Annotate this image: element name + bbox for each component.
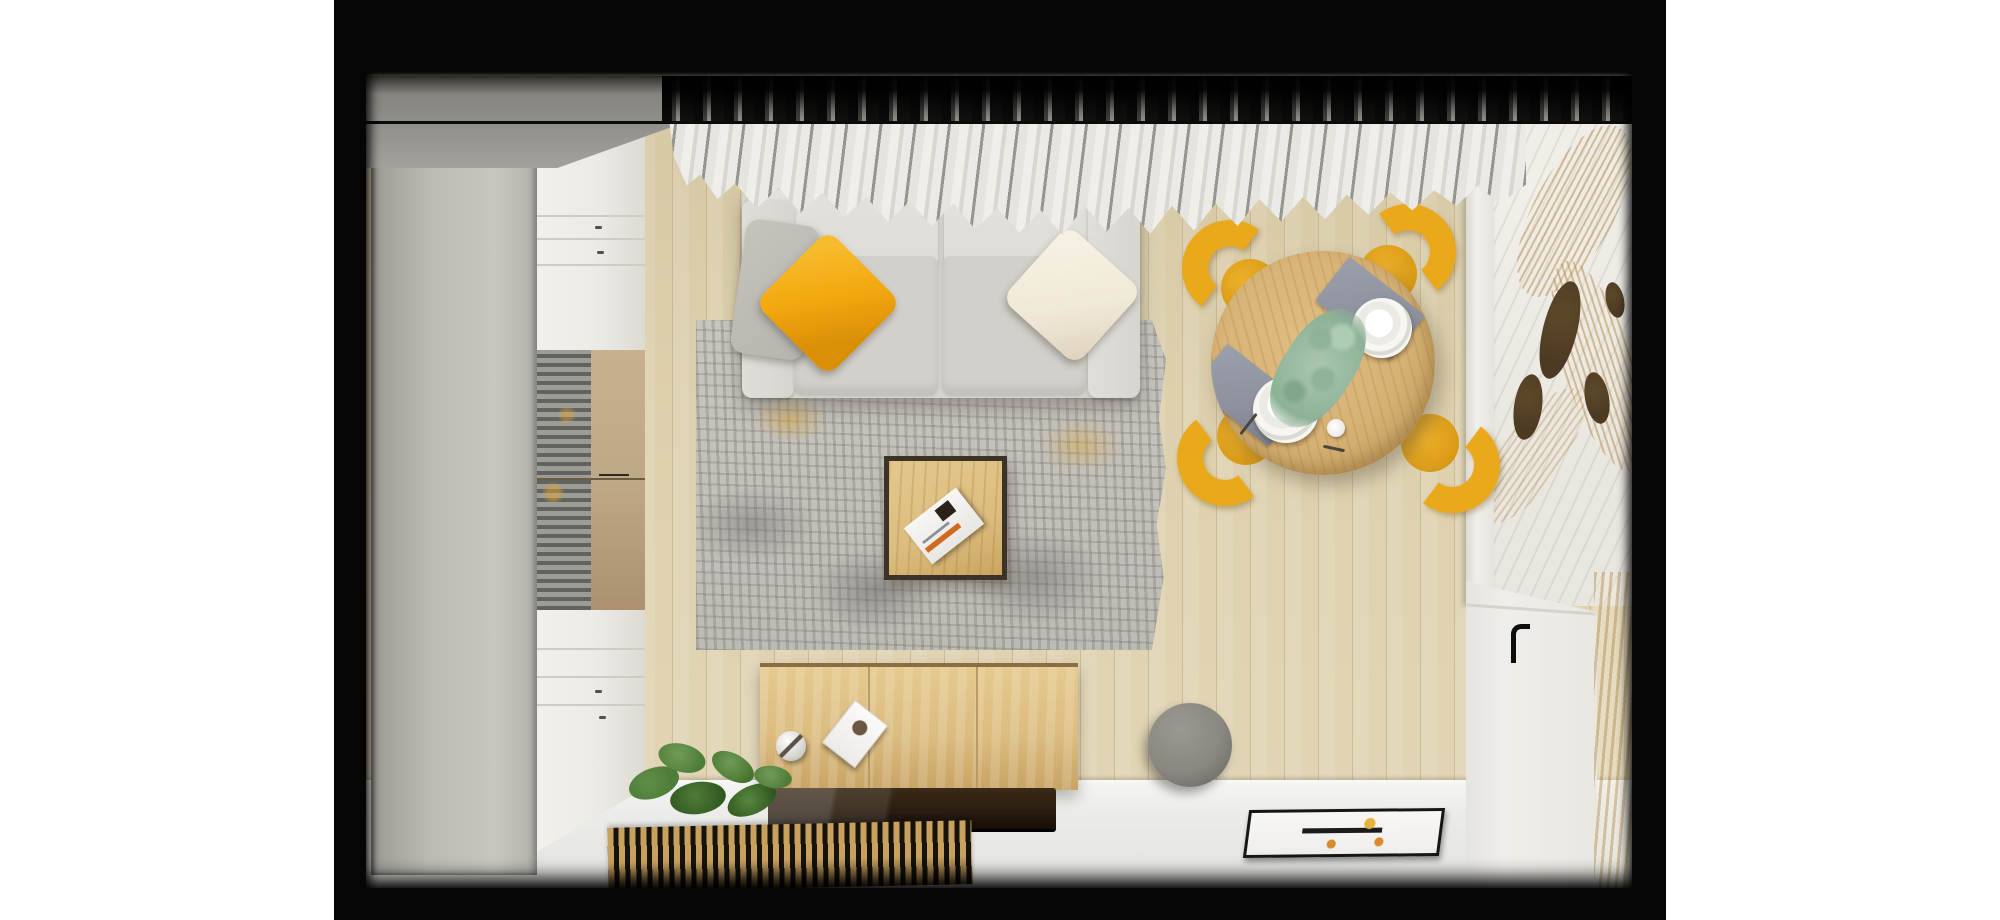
drawer-handle <box>597 251 604 254</box>
cabinet-seam <box>537 215 645 217</box>
floor-art-frame <box>1243 808 1445 858</box>
cabinet-glass-left <box>537 350 591 610</box>
cabinet-glass-seam <box>537 478 645 480</box>
drawer-handle <box>595 690 602 693</box>
white-door <box>1466 578 1597 888</box>
cabinet-seam <box>537 648 645 650</box>
drawer-handle <box>595 226 602 229</box>
door-handle-icon <box>1511 624 1530 663</box>
magazine <box>904 488 984 565</box>
ball-pouf <box>1148 703 1232 787</box>
plant-leaf <box>668 778 728 817</box>
coffee-table <box>884 456 1007 580</box>
page-canvas <box>0 0 2000 920</box>
cabinet-seam <box>537 238 645 240</box>
wall-column <box>1466 152 1494 606</box>
cabinet-seam <box>537 264 645 266</box>
plant <box>628 736 792 840</box>
palm-leaf-icon <box>1594 572 1632 888</box>
drawer-handle <box>599 716 606 719</box>
curtain-rail <box>366 121 1632 124</box>
decor-card <box>822 700 888 768</box>
cup <box>1327 419 1345 437</box>
cabinet-glass-handle <box>599 474 629 476</box>
wardrobe <box>371 84 537 875</box>
cutlery <box>1323 445 1345 453</box>
curtain-shadow-band <box>662 76 1632 124</box>
room-render <box>366 72 1632 888</box>
cabinet-glass-right <box>591 350 645 610</box>
cabinet-seam <box>537 704 645 706</box>
cabinet-seam <box>537 676 645 678</box>
sideboard <box>760 663 1078 790</box>
